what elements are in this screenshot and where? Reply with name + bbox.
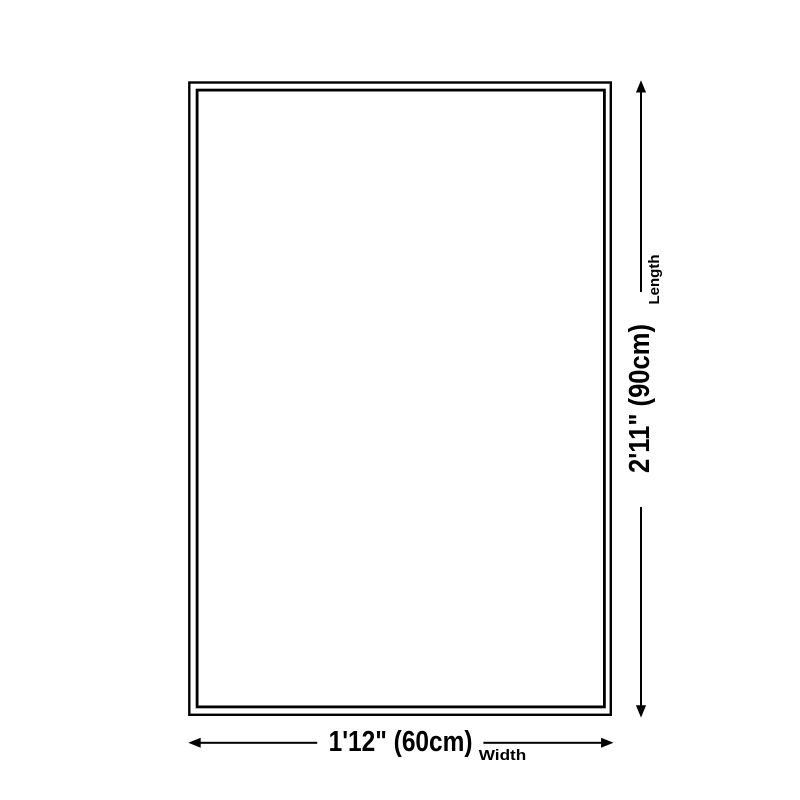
svg-text:Length: Length [646,255,663,305]
svg-text:Width: Width [479,747,527,764]
svg-text:2'11" (90cm): 2'11" (90cm) [624,324,656,473]
svg-text:1'12" (60cm): 1'12" (60cm) [329,726,473,758]
